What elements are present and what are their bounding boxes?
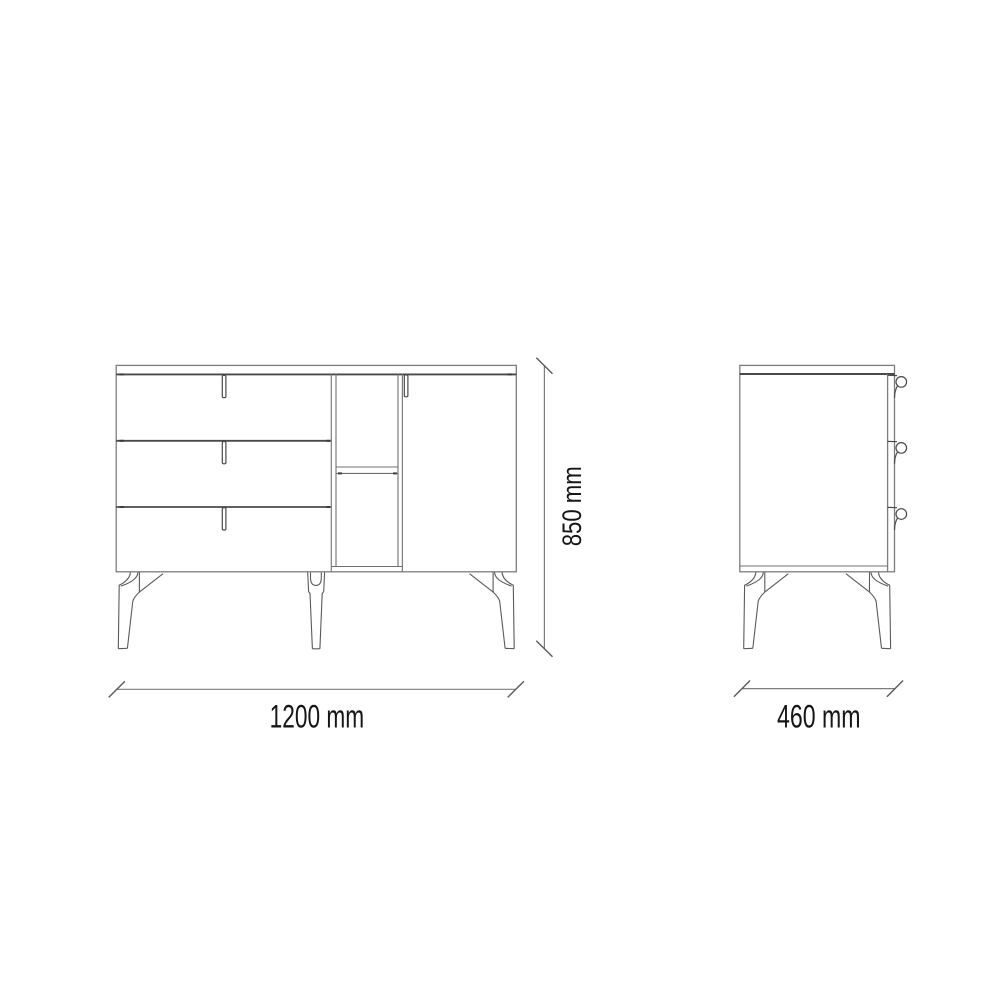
svg-text:850 mm: 850 mm: [557, 466, 587, 546]
svg-text:460 mm: 460 mm: [777, 699, 861, 735]
svg-text:1200 mm: 1200 mm: [270, 699, 365, 735]
